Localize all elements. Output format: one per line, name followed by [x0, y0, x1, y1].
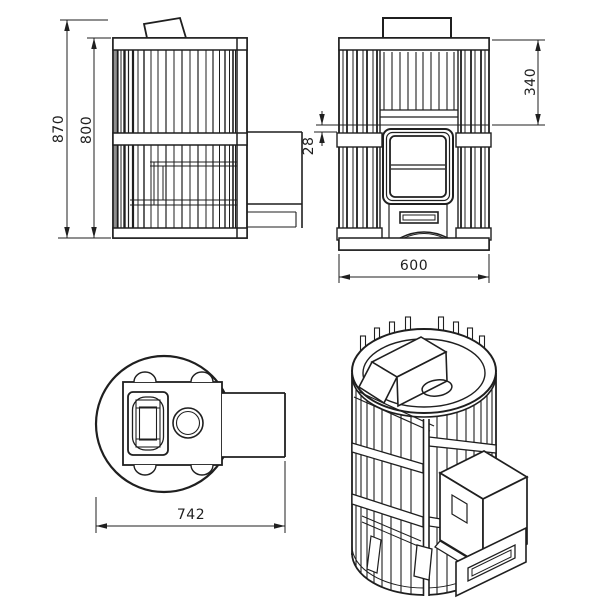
drawing-canvas: 870 800 — [0, 0, 600, 600]
isometric-view — [352, 317, 527, 596]
side-chimney-stub — [144, 18, 186, 38]
dim-width: 600 — [400, 258, 428, 274]
front-upper-slats — [384, 52, 454, 110]
dim-shelf-gap: 28 — [301, 137, 317, 156]
side-interior-details — [130, 162, 237, 205]
side-view: 870 800 — [51, 18, 302, 238]
iso-left-leg — [367, 536, 381, 573]
front-right-mid-clamp — [456, 133, 491, 147]
side-top-band — [113, 38, 247, 50]
front-top-band — [339, 38, 489, 50]
dim-body-height: 800 — [79, 116, 95, 144]
dim-depth: 742 — [177, 507, 205, 523]
front-chimney — [383, 18, 451, 38]
front-left-mid-clamp — [337, 133, 382, 147]
front-door — [383, 129, 453, 204]
front-shelf-band — [339, 110, 489, 125]
iso-front-leg — [414, 545, 432, 580]
side-bottom-band — [113, 228, 247, 238]
dim-upper-section: 340 — [523, 68, 539, 96]
side-middle-band — [113, 133, 247, 145]
front-bottom-band — [339, 238, 489, 250]
side-tunnel — [247, 132, 302, 228]
stove-technical-drawing: 870 800 — [0, 0, 600, 600]
dim-overall-height: 870 — [51, 115, 67, 143]
front-view: 340 28 600 — [301, 18, 545, 283]
front-ash-slot — [400, 212, 438, 223]
top-view: 742 — [96, 356, 285, 533]
top-tunnel — [222, 393, 285, 457]
